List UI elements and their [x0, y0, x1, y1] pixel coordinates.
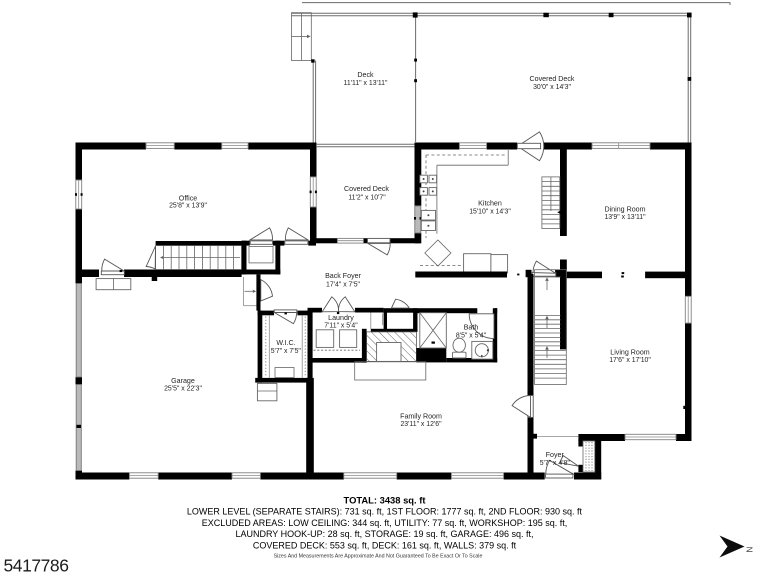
svg-text:25'5" x 22'3": 25'5" x 22'3" [164, 386, 202, 393]
svg-text:Garage: Garage [171, 377, 195, 385]
svg-text:11'2" x 10'7": 11'2" x 10'7" [348, 195, 386, 202]
svg-text:Bath: Bath [464, 323, 479, 331]
svg-text:Sizes And Measurements Are App: Sizes And Measurements Are Approximate A… [274, 553, 483, 559]
svg-text:Deck: Deck [357, 71, 374, 79]
svg-text:Kitchen: Kitchen [478, 200, 502, 208]
svg-text:W.I.C.: W.I.C. [276, 339, 295, 347]
svg-text:11'11" x 13'11": 11'11" x 13'11" [344, 80, 388, 87]
svg-text:30'0" x 14'3": 30'0" x 14'3" [533, 84, 571, 91]
svg-text:LAUNDRY HOOK-UP: 28 sq. ft, ST: LAUNDRY HOOK-UP: 28 sq. ft, STORAGE: 19 … [235, 529, 533, 539]
svg-text:Office: Office [179, 194, 197, 202]
svg-text:7'11" x 5'4": 7'11" x 5'4" [324, 323, 358, 330]
svg-text:23'11" x 12'6": 23'11" x 12'6" [400, 421, 442, 428]
svg-text:15'10" x 14'3": 15'10" x 14'3" [469, 208, 511, 215]
svg-text:LOWER LEVEL (SEPARATE STAIRS):: LOWER LEVEL (SEPARATE STAIRS): 731 sq. f… [187, 507, 583, 517]
svg-text:5417786: 5417786 [4, 556, 69, 576]
svg-text:17'6" x 17'10": 17'6" x 17'10" [609, 357, 651, 364]
svg-text:25'8" x 13'9": 25'8" x 13'9" [169, 202, 207, 209]
svg-text:Covered Deck: Covered Deck [344, 185, 389, 193]
svg-text:Foyer: Foyer [546, 451, 565, 459]
svg-text:Dining Room: Dining Room [604, 206, 645, 214]
svg-text:Living Room: Living Room [610, 348, 650, 356]
svg-text:Back Foyer: Back Foyer [325, 272, 362, 280]
svg-text:N: N [745, 547, 755, 553]
svg-text:Laundry: Laundry [328, 314, 354, 322]
svg-text:Family Room: Family Room [400, 412, 442, 420]
svg-text:Covered Deck: Covered Deck [530, 75, 575, 83]
svg-text:TOTAL: 3438 sq. ft: TOTAL: 3438 sq. ft [344, 494, 426, 505]
svg-text:17'4" x 7'5": 17'4" x 7'5" [326, 281, 361, 288]
svg-text:13'9" x 13'11": 13'9" x 13'11" [604, 214, 646, 221]
svg-text:EXCLUDED AREAS: LOW CEILING: 3: EXCLUDED AREAS: LOW CEILING: 344 sq. ft,… [202, 518, 568, 528]
svg-text:5'7" x 7'5": 5'7" x 7'5" [271, 348, 302, 355]
svg-text:5'7" x 4'8": 5'7" x 4'8" [540, 460, 571, 467]
svg-text:COVERED DECK: 553 sq. ft, DECK: COVERED DECK: 553 sq. ft, DECK: 161 sq. … [253, 540, 517, 550]
